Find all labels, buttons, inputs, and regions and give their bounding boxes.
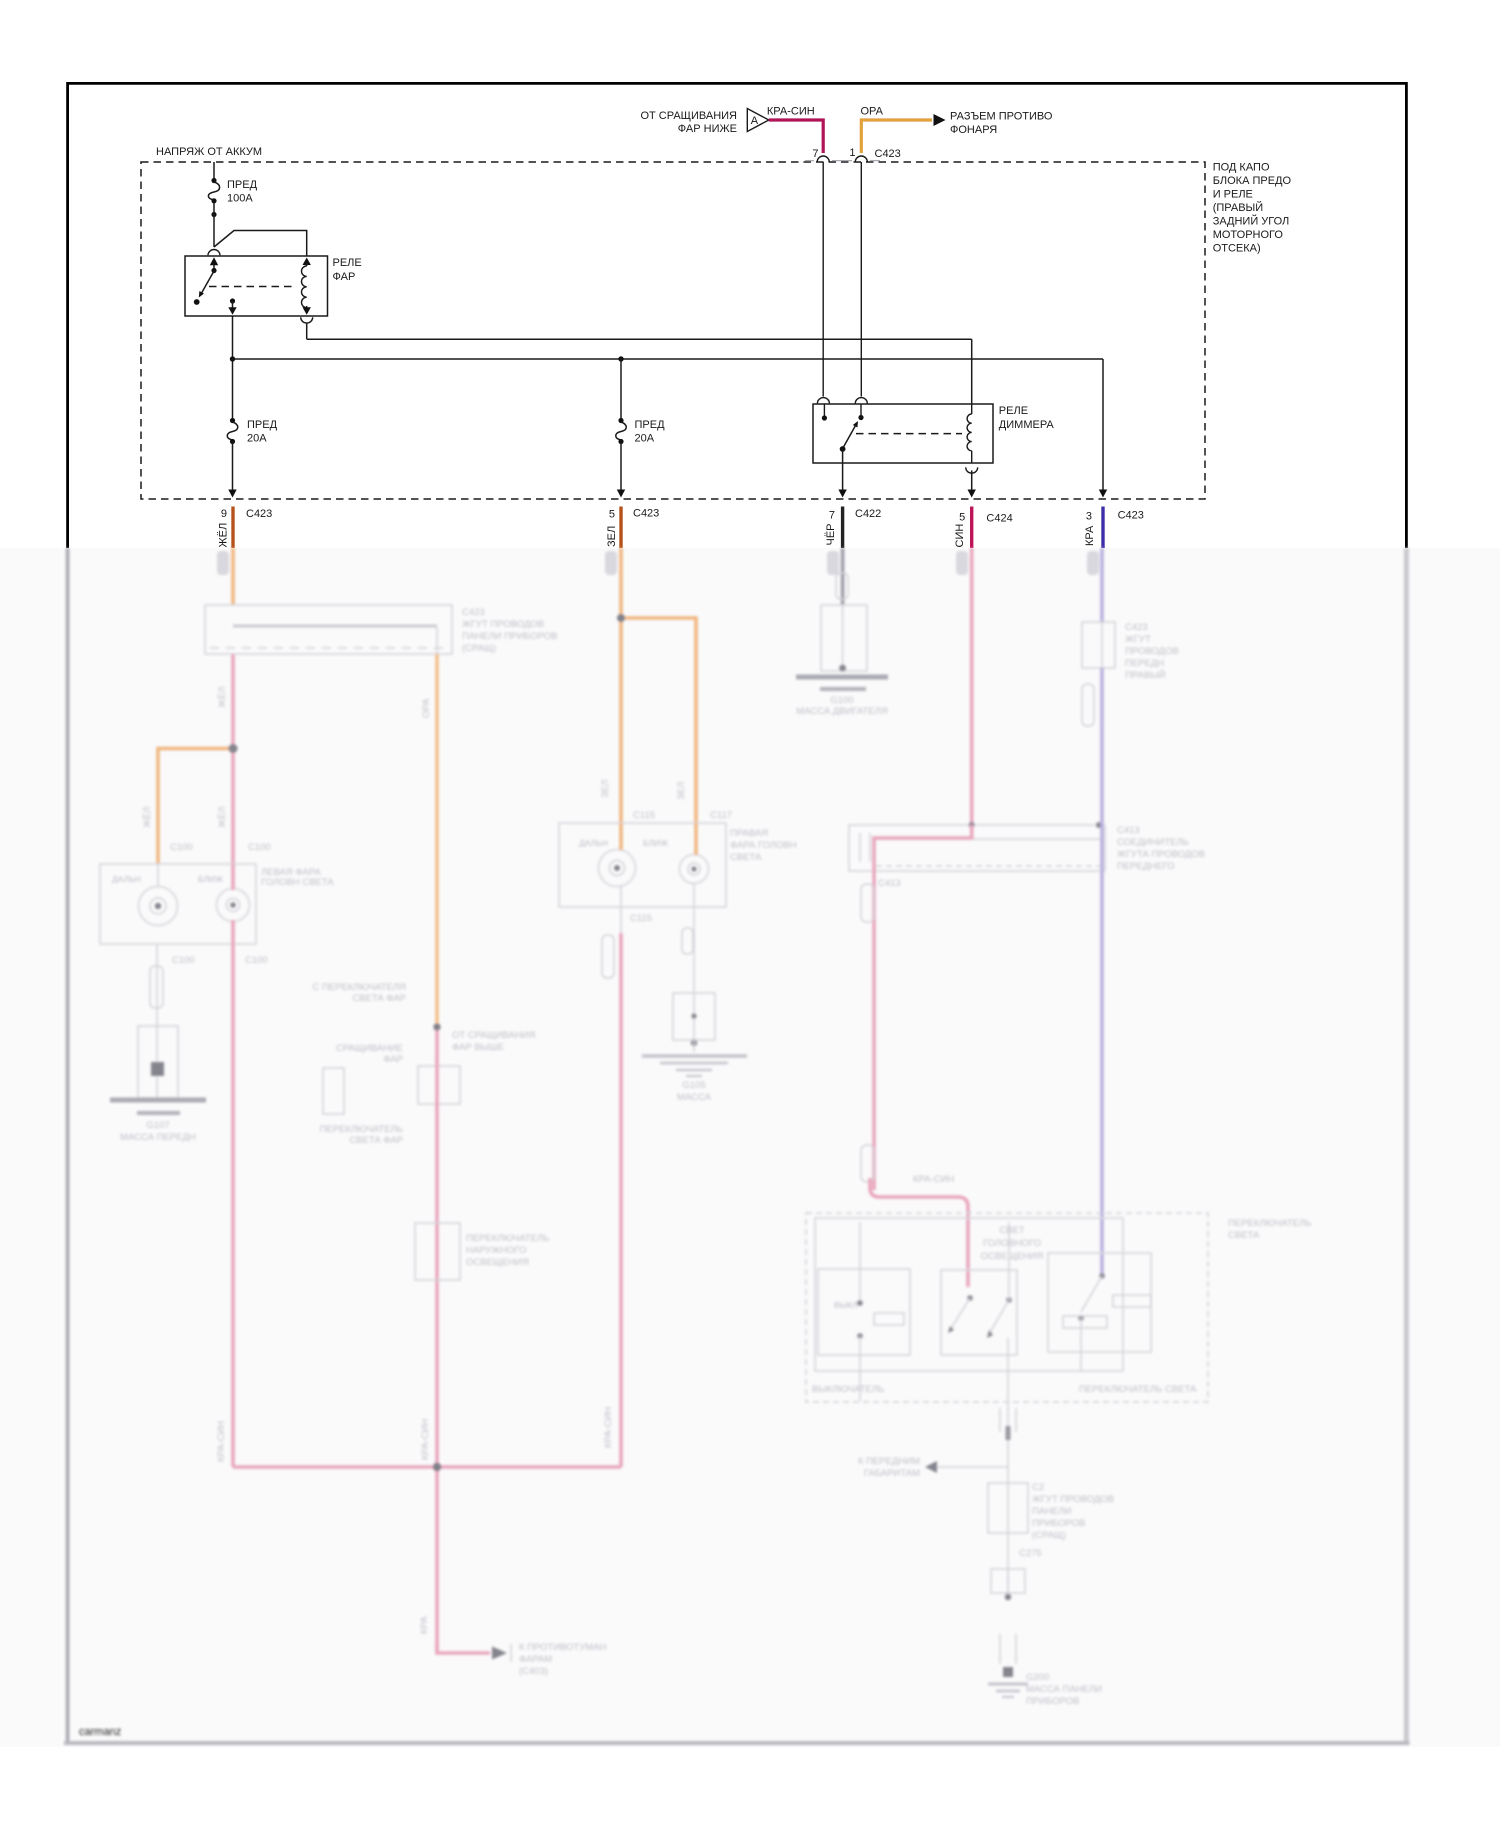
svg-text:СРАЩИВАНИЕ: СРАЩИВАНИЕ [336, 1043, 403, 1054]
svg-text:С423: С423 [875, 148, 901, 160]
svg-text:ЖГУТ ПРОВОДОВ: ЖГУТ ПРОВОДОВ [1032, 1494, 1114, 1505]
svg-text:G100: G100 [830, 695, 853, 706]
svg-text:ГОЛОВН СВЕТА: ГОЛОВН СВЕТА [261, 877, 334, 888]
svg-text:ПРИБОРОВ: ПРИБОРОВ [1032, 1518, 1085, 1529]
svg-text:ФАР: ФАР [383, 1054, 403, 1065]
svg-text:К ПЕРЕДНИМ: К ПЕРЕДНИМ [858, 1456, 920, 1467]
svg-text:ПРАВЫЙ: ПРАВЫЙ [1125, 669, 1166, 681]
svg-text:ЖГУТ ПРОВОДОВ: ЖГУТ ПРОВОДОВ [462, 619, 544, 630]
svg-text:20А: 20А [247, 433, 267, 445]
svg-text:С100: С100 [172, 955, 195, 966]
svg-text:ФОНАРЯ: ФОНАРЯ [950, 124, 997, 136]
svg-text:ЖГУТ: ЖГУТ [1125, 634, 1151, 645]
svg-text:(ПРАВЫЙ: (ПРАВЫЙ [1213, 201, 1264, 214]
svg-text:С423: С423 [246, 508, 272, 520]
svg-text:ЖЁЛ: ЖЁЛ [142, 807, 153, 828]
svg-text:РАЗЪЕМ ПРОТИВО: РАЗЪЕМ ПРОТИВО [950, 111, 1053, 123]
svg-text:ПЕРЕКЛЮЧАТЕЛЬ: ПЕРЕКЛЮЧАТЕЛЬ [320, 1124, 403, 1135]
svg-text:ДАЛЬН: ДАЛЬН [112, 874, 141, 884]
svg-text:ПАНЕЛИ: ПАНЕЛИ [1032, 1506, 1072, 1517]
svg-text:С422: С422 [855, 508, 881, 520]
svg-text:5: 5 [609, 509, 615, 521]
svg-text:НАРУЖНОГО: НАРУЖНОГО [466, 1245, 526, 1256]
svg-text:(С403): (С403) [519, 1666, 548, 1677]
svg-text:МАССА ПАНЕЛИ: МАССА ПАНЕЛИ [1026, 1684, 1102, 1695]
svg-text:СВЕТ: СВЕТ [999, 1225, 1025, 1236]
svg-text:ЗЕЛ: ЗЕЛ [676, 782, 687, 800]
svg-text:НАПРЯЖ ОТ АККУМ: НАПРЯЖ ОТ АККУМ [156, 146, 262, 158]
svg-text:(СРАЩ): (СРАЩ) [1032, 1530, 1066, 1541]
svg-text:ФАРАМ: ФАРАМ [519, 1654, 552, 1665]
svg-text:КРА-СИН: КРА-СИН [420, 1419, 431, 1460]
svg-text:С100: С100 [170, 842, 193, 853]
svg-text:С423: С423 [462, 607, 485, 618]
svg-text:ПРЕД: ПРЕД [227, 179, 258, 191]
svg-text:ПЕРЕДНЕГО: ПЕРЕДНЕГО [1117, 861, 1174, 872]
svg-text:ОТ СРАЩИВАНИЯ: ОТ СРАЩИВАНИЯ [452, 1030, 536, 1041]
svg-text:МАССА: МАССА [677, 1092, 712, 1103]
svg-text:ЖГУТА ПРОВОДОВ: ЖГУТА ПРОВОДОВ [1117, 849, 1205, 860]
svg-text:ЗАДНИЙ УГОЛ: ЗАДНИЙ УГОЛ [1213, 215, 1290, 228]
svg-text:КРА-СИН: КРА-СИН [603, 1407, 614, 1448]
svg-text:ЖЁЛ: ЖЁЛ [217, 687, 228, 708]
svg-text:С413: С413 [878, 878, 901, 889]
svg-text:СВЕТА: СВЕТА [730, 852, 762, 863]
svg-text:С423: С423 [633, 508, 659, 520]
svg-text:G105: G105 [682, 1080, 705, 1091]
svg-text:7: 7 [829, 510, 835, 522]
svg-text:ФАР ВЫШЕ: ФАР ВЫШЕ [452, 1042, 504, 1053]
svg-text:7: 7 [812, 148, 818, 160]
svg-text:9: 9 [221, 508, 227, 520]
svg-text:ПРЕД: ПРЕД [247, 419, 278, 431]
svg-text:ОРА: ОРА [861, 106, 884, 118]
svg-text:С275: С275 [1019, 1548, 1042, 1559]
svg-text:G107: G107 [146, 1120, 169, 1131]
svg-text:ОСВЕЩЕНИЯ: ОСВЕЩЕНИЯ [466, 1257, 529, 1268]
svg-text:carmanz: carmanz [79, 1726, 121, 1738]
svg-text:И РЕЛЕ: И РЕЛЕ [1213, 189, 1253, 201]
svg-text:С115: С115 [630, 913, 652, 924]
svg-text:ПРАВАЯ: ПРАВАЯ [730, 828, 768, 839]
svg-text:ПЕРЕДН: ПЕРЕДН [1125, 658, 1164, 669]
svg-text:ФАР НИЖЕ: ФАР НИЖЕ [678, 123, 737, 135]
svg-text:ФАР: ФАР [333, 271, 356, 283]
svg-text:СВЕТА ФАР: СВЕТА ФАР [349, 1135, 403, 1146]
svg-text:С423: С423 [1125, 622, 1148, 633]
svg-text:ЗЕЛ: ЗЕЛ [600, 780, 611, 798]
svg-text:ПРЕД: ПРЕД [635, 419, 666, 431]
svg-text:ОРА: ОРА [421, 698, 432, 718]
svg-text:БЛИЖ: БЛИЖ [643, 838, 668, 848]
svg-text:3: 3 [1086, 511, 1092, 523]
svg-text:КРА: КРА [419, 1616, 430, 1634]
svg-text:(СРАЩ): (СРАЩ) [462, 643, 496, 654]
svg-text:СВЕТА: СВЕТА [1228, 1230, 1260, 1241]
svg-text:РЕЛЕ: РЕЛЕ [333, 257, 362, 269]
svg-text:А: А [751, 115, 759, 127]
svg-text:КРА-СИН: КРА-СИН [216, 1421, 227, 1462]
svg-text:С2: С2 [1032, 1482, 1044, 1493]
svg-text:ДАЛЬН: ДАЛЬН [579, 838, 608, 848]
svg-text:ГАБАРИТАМ: ГАБАРИТАМ [864, 1468, 920, 1479]
svg-text:ПРОВОДОВ: ПРОВОДОВ [1125, 646, 1179, 657]
svg-text:БЛОКА ПРЕДО: БЛОКА ПРЕДО [1213, 175, 1292, 187]
svg-text:ВЫКЛ: ВЫКЛ [834, 1300, 858, 1310]
svg-text:ПЕРЕКЛЮЧАТЕЛЬ СВЕТА: ПЕРЕКЛЮЧАТЕЛЬ СВЕТА [1079, 1384, 1197, 1395]
svg-text:ЖЁЛ: ЖЁЛ [218, 523, 230, 548]
svg-text:ЖЁЛ: ЖЁЛ [217, 807, 228, 828]
svg-text:БЛИЖ: БЛИЖ [198, 874, 223, 884]
svg-text:ОТ СРАЩИВАНИЯ: ОТ СРАЩИВАНИЯ [640, 110, 737, 122]
svg-text:КРА-СИН: КРА-СИН [767, 106, 815, 118]
svg-text:СОЕДИНИТЕЛЬ: СОЕДИНИТЕЛЬ [1117, 837, 1189, 848]
svg-text:С424: С424 [986, 513, 1012, 525]
svg-text:С100: С100 [248, 842, 271, 853]
svg-text:С100: С100 [245, 955, 268, 966]
svg-text:ПРИБОРОВ: ПРИБОРОВ [1026, 1696, 1079, 1707]
svg-text:ДИММЕРА: ДИММЕРА [999, 419, 1055, 431]
svg-text:С115: С115 [633, 810, 655, 821]
svg-text:ПОД КАПО: ПОД КАПО [1213, 162, 1270, 174]
svg-text:СВЕТА ФАР: СВЕТА ФАР [352, 993, 406, 1004]
svg-text:С413: С413 [1117, 825, 1140, 836]
svg-text:100А: 100А [227, 193, 253, 205]
svg-text:МОТОРНОГО: МОТОРНОГО [1213, 229, 1284, 241]
svg-text:ОСВЕЩЕНИЯ: ОСВЕЩЕНИЯ [981, 1251, 1044, 1262]
svg-text:ПАНЕЛИ ПРИБОРОВ: ПАНЕЛИ ПРИБОРОВ [462, 631, 557, 642]
svg-text:СИН: СИН [954, 524, 966, 548]
svg-text:С ПЕРЕКЛЮЧАТЕЛЯ: С ПЕРЕКЛЮЧАТЕЛЯ [312, 982, 406, 993]
svg-text:ПЕРЕКЛЮЧАТЕЛЬ: ПЕРЕКЛЮЧАТЕЛЬ [1228, 1218, 1311, 1229]
svg-text:МАССА ДВИГАТЕЛЯ: МАССА ДВИГАТЕЛЯ [796, 706, 888, 717]
svg-text:ГОЛОВНОГО: ГОЛОВНОГО [983, 1238, 1041, 1249]
svg-text:ФАРА ГОЛОВН: ФАРА ГОЛОВН [730, 840, 797, 851]
svg-text:ВЫКЛЮЧАТЕЛЬ: ВЫКЛЮЧАТЕЛЬ [812, 1384, 884, 1395]
svg-text:К ПРОТИВОТУМАН: К ПРОТИВОТУМАН [519, 1642, 607, 1653]
svg-text:ОТСЕКА): ОТСЕКА) [1213, 243, 1261, 255]
svg-text:КРА-СИН: КРА-СИН [913, 1174, 954, 1185]
svg-text:ЗЕЛ: ЗЕЛ [606, 526, 618, 547]
svg-text:20А: 20А [635, 433, 655, 445]
svg-text:ПЕРЕКЛЮЧАТЕЛЬ: ПЕРЕКЛЮЧАТЕЛЬ [466, 1233, 549, 1244]
svg-text:ЧЁР: ЧЁР [825, 523, 837, 545]
svg-text:С423: С423 [1118, 510, 1144, 522]
svg-text:КРА: КРА [1084, 525, 1096, 546]
svg-text:МАССА ПЕРЕДН: МАССА ПЕРЕДН [120, 1132, 196, 1143]
svg-text:С117: С117 [710, 810, 732, 821]
svg-text:G200: G200 [1026, 1672, 1049, 1683]
svg-text:5: 5 [959, 512, 965, 524]
svg-text:РЕЛЕ: РЕЛЕ [999, 405, 1028, 417]
svg-text:1: 1 [849, 147, 855, 159]
